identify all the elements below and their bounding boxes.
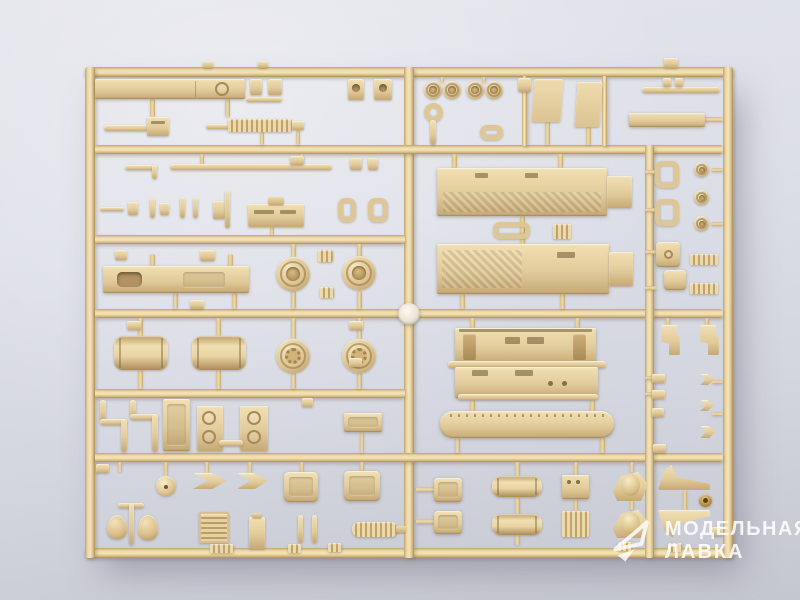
sprue-gate-stub (482, 77, 486, 83)
mirror-arm-part (129, 503, 134, 545)
small-bracket-part (268, 79, 282, 95)
small-cylinder-part (160, 203, 169, 215)
hatch-panel-part-panel (289, 477, 313, 497)
l-bracket-part (374, 79, 392, 100)
small-bracket-part (368, 158, 378, 170)
cargo-bed-end-part (609, 252, 633, 286)
fuel-tank-part (192, 336, 246, 370)
stowage-box-part-panel (167, 404, 186, 446)
sprue-gate-stub (360, 462, 364, 471)
sprue-gate-stub (440, 77, 444, 83)
box-part-dot (576, 480, 580, 484)
small-cylinder-part (652, 408, 664, 417)
spring-block-part (147, 117, 169, 136)
cab-rear-panel-part-slot (505, 337, 520, 344)
watermark-line1: МОДЕЛЬНАЯ (665, 519, 800, 539)
small-block-part (96, 464, 109, 473)
hatch-panel-part (284, 472, 318, 502)
sprue-gate-stub (558, 154, 563, 168)
u-bracket-part (368, 198, 388, 222)
wheel-hub-part (485, 81, 503, 99)
mirror-cup-part (138, 515, 158, 540)
stowage-box-part (163, 399, 190, 451)
cargo-bed-panel-part-slot (525, 173, 538, 178)
sprue-gate-stub (164, 462, 168, 476)
small-block-part (675, 78, 683, 87)
bent-pipe-part (152, 414, 158, 452)
cylinder-tank-part (492, 514, 542, 535)
flat-plate-part-ring (215, 82, 229, 96)
sprue-gate-stub (705, 318, 709, 325)
flat-plate-part (95, 79, 245, 99)
mirror-cup-part (107, 515, 127, 539)
pump-part-ring (247, 430, 261, 444)
sprue-gate-stub (574, 499, 578, 511)
cab-lower-panel-part-slot (515, 370, 533, 376)
roller-part (694, 190, 709, 205)
sprue-runner (602, 76, 607, 146)
sprue-gate-stub (574, 462, 578, 475)
sprue-gate-stub (360, 432, 364, 453)
engine-part (248, 204, 304, 227)
ribbed-block-part (288, 544, 301, 553)
barrel-tip-part (206, 124, 230, 129)
cargo-bed-panel-part-tex (442, 250, 522, 288)
thin-rod-part (642, 87, 720, 93)
sprue-gate-stub (173, 293, 178, 309)
sprue-gate-stub (150, 99, 155, 117)
sprue-gate-stub (666, 318, 670, 325)
sprue-gate-stub (150, 254, 155, 266)
sprue-gate-stub (645, 286, 657, 290)
canister-part-cap (252, 513, 262, 518)
cab-lower-panel-part-slot (472, 370, 488, 376)
small-block-part (127, 321, 141, 330)
sprue-gate-stub (460, 294, 465, 309)
hatch-part-ring (664, 250, 673, 259)
wheel-hub-part (466, 81, 484, 99)
ribbed-block-part (210, 544, 234, 553)
sprue-gate-stub (683, 490, 687, 511)
frame-ring-part (655, 161, 679, 188)
axle-rod-part (104, 125, 148, 131)
road-wheel-part (342, 256, 376, 290)
sprue-gate-stub (515, 462, 520, 476)
sprue-gate-stub (270, 227, 274, 235)
tall-pin-part (225, 190, 230, 228)
sprue-gate-stub (225, 99, 230, 117)
cylinder-tank-part (492, 476, 542, 497)
roller-part (694, 162, 709, 177)
sprue-runner (95, 389, 405, 398)
sprue-gate-stub (291, 373, 296, 389)
u-bracket-part (480, 125, 503, 140)
sprue-gate-stub (291, 291, 296, 309)
base-plate-part (440, 411, 614, 438)
engine-part-slot (254, 210, 274, 214)
model-shop-logo-icon (610, 518, 656, 562)
chassis-beam-part (103, 266, 249, 293)
sill-plate-part (629, 113, 705, 127)
small-post-part (150, 198, 155, 218)
small-bracket-part (350, 158, 362, 170)
mudguard-panel-part (531, 79, 563, 122)
u-bracket-part (338, 198, 356, 222)
l-bracket-part-hole (352, 84, 360, 92)
frame-ring-part (655, 199, 679, 226)
ribbed-block-part (328, 543, 342, 552)
road-wheel-part (342, 339, 376, 373)
sprue-gate-stub (560, 294, 565, 309)
cargo-bed-panel-part (437, 244, 609, 294)
sprue-gate-stub (712, 412, 723, 416)
clip-part (213, 201, 225, 219)
cab-rear-panel-part-slot (527, 337, 544, 344)
cab-rear-panel-part (455, 328, 596, 364)
small-block-part (349, 321, 363, 330)
base-plate-part-dots (450, 414, 604, 417)
towing-eye-stem (430, 120, 436, 145)
pump-part (240, 406, 268, 451)
sprue-gate-stub (357, 291, 362, 309)
sprue-gate-stub (630, 462, 634, 472)
box-part-dot (567, 480, 571, 484)
wire-post-part (152, 165, 157, 179)
bent-pipe-part (121, 419, 127, 452)
sprue-gate-stub (118, 462, 122, 472)
sprue-gate-stub (138, 370, 143, 389)
barrel-cap-part (292, 121, 304, 130)
sprue-gate-stub (232, 293, 237, 309)
sprue-gate-stub (248, 462, 252, 473)
sprue-gate-stub (357, 373, 362, 389)
small-block-part (290, 156, 304, 165)
sprue-gate-stub (515, 497, 520, 514)
hook-part (697, 325, 719, 355)
cargo-bed-panel-part-tex (443, 192, 601, 212)
cargo-bed-panel-part (437, 168, 607, 216)
l-bracket-part-hole (379, 84, 387, 92)
mudguard-panel-part (574, 82, 602, 127)
cab-rear-panel-part-blkd (463, 334, 476, 360)
small-bracket-part (250, 79, 262, 95)
cab-lower-panel-part-dot (562, 381, 567, 386)
small-wing-part (700, 400, 714, 411)
small-cylinder-part (652, 390, 665, 399)
cab-lower-panel-part-dot (548, 381, 553, 386)
sprue-gate-stub (630, 500, 634, 510)
fuel-tank-part (114, 336, 168, 370)
axle-cross-part (690, 254, 718, 265)
small-post-part (180, 197, 185, 218)
small-arrow-part (700, 426, 716, 438)
canister-part (249, 517, 265, 549)
hatch-panel-part-panel (349, 476, 375, 496)
gate-hole-part (699, 494, 712, 507)
sprue-gate-stub (711, 222, 723, 226)
mud-flap-part-panel (438, 515, 458, 530)
l-bracket-part (348, 79, 364, 100)
engine-part-cap (268, 197, 284, 205)
sprue-runner (95, 453, 723, 462)
thin-rod-part (298, 515, 303, 543)
sprue-gate-stub (296, 130, 300, 145)
ribbed-box-part (562, 511, 589, 537)
wing-part (237, 473, 268, 489)
sprue-gate-stub (590, 400, 595, 411)
small-block-part (653, 444, 666, 453)
sprue-gate-stub (452, 154, 457, 168)
sprue-gate-stub (515, 535, 520, 545)
sprue-gate-stub (470, 400, 475, 411)
muffler-part (352, 522, 398, 537)
sprue-gate-stub (455, 438, 460, 453)
thin-rod-part (312, 515, 317, 543)
mud-flap-part (434, 478, 462, 502)
small-bracket-part (518, 78, 531, 92)
sprue-gate-stub (545, 122, 550, 145)
hatch-part (656, 242, 680, 267)
sprue-gate-stub (291, 244, 296, 257)
cargo-bed-panel-part-slot (475, 173, 488, 178)
small-block-part (663, 78, 671, 87)
spring-block-part-slot (151, 121, 165, 124)
sprue-runner (723, 67, 733, 558)
sprue-gate-stub (216, 318, 221, 336)
cab-sill-part (458, 394, 598, 400)
chassis-beam-part-panel (183, 272, 225, 288)
sprue-gate-stub (416, 487, 435, 492)
tray-part-panel (348, 417, 378, 428)
sprue-gate-stub (711, 168, 723, 172)
sprue-runner (95, 235, 405, 244)
chassis-beam-part-hole (117, 272, 142, 287)
engine-part-slot (280, 210, 296, 214)
sprue-gate-stub (470, 318, 475, 328)
small-block-part (190, 300, 204, 309)
injection-gate-knob (398, 303, 420, 325)
sprue-gate-stub (300, 462, 304, 472)
pin-rod-part (100, 207, 124, 211)
sprue-gate-stub (703, 117, 723, 122)
axle-cross-part (690, 283, 718, 294)
cab-rear-panel-part-slot (459, 329, 592, 332)
cargo-bed-end-part (607, 176, 632, 208)
tray-part (344, 413, 382, 432)
watermark: МОДЕЛЬНАЯ ЛАВКА (610, 518, 800, 562)
pump-part-ring (247, 411, 261, 425)
gun-barrel-part (228, 119, 292, 132)
small-block-part (115, 250, 127, 260)
wheel-hub-part (424, 81, 442, 99)
pump-part-ring (202, 411, 216, 425)
hatch-panel-part (344, 471, 380, 501)
road-wheel-part (276, 257, 310, 291)
watermark-line2: ЛАВКА (665, 542, 800, 562)
grille-part (199, 512, 229, 543)
sprue-runner (95, 145, 723, 154)
sprue-gate-stub (416, 519, 435, 524)
mud-flap-part (434, 511, 462, 534)
small-cylinder-part (652, 374, 665, 383)
hatch-part (664, 270, 686, 290)
sprue-gate-stub (575, 318, 580, 328)
sprue-gate-stub (291, 318, 296, 339)
comb-part (553, 224, 571, 239)
cargo-bed-panel-part-slot (557, 252, 575, 258)
wing-part (193, 473, 227, 489)
pump-part-ring (202, 430, 216, 444)
t-pipe-part (219, 440, 243, 446)
ribbed-box-part (318, 250, 333, 262)
muffler-part-cap (396, 526, 406, 533)
road-wheel-part (276, 339, 310, 373)
box-part (562, 475, 589, 499)
hook-part (658, 325, 680, 355)
sprue-runner (85, 67, 95, 558)
small-nub-part (258, 61, 268, 68)
sprue-gate-stub (260, 132, 264, 145)
small-bracket-part (664, 58, 678, 68)
ball-part (156, 476, 176, 496)
product-photo-stage: МОДЕЛЬНАЯ ЛАВКА (0, 0, 800, 600)
watermark-text: МОДЕЛЬНАЯ ЛАВКА (665, 519, 800, 562)
arch-part (493, 222, 530, 239)
sprue-gate-stub (216, 370, 221, 389)
sprue-gate-stub (586, 127, 591, 145)
model-kit-sprue (0, 0, 800, 600)
sprue-runner (645, 145, 654, 558)
mud-flap-part-panel (438, 482, 458, 498)
fin-bracket-part (658, 465, 710, 490)
small-block-part (349, 358, 362, 367)
ribbed-box-part (320, 287, 334, 298)
small-block-part (302, 398, 313, 407)
sprue-gate-stub (205, 462, 209, 473)
flat-plate-part-line (195, 81, 196, 97)
small-block-part (200, 250, 215, 261)
elbow-rod-part (246, 97, 282, 102)
roller-part (694, 216, 709, 231)
sprue-gate-stub (600, 438, 605, 453)
long-rod-part (170, 164, 332, 170)
small-post-part (193, 197, 198, 218)
small-cylinder-part (128, 202, 138, 215)
headlight-pod-part (613, 472, 648, 501)
cab-rear-panel-part-blkd (573, 334, 586, 360)
sprue-gate-stub (712, 380, 723, 384)
sprue-gate-stub (228, 254, 233, 266)
wheel-hub-part (443, 81, 461, 99)
small-nub-part (203, 61, 213, 68)
